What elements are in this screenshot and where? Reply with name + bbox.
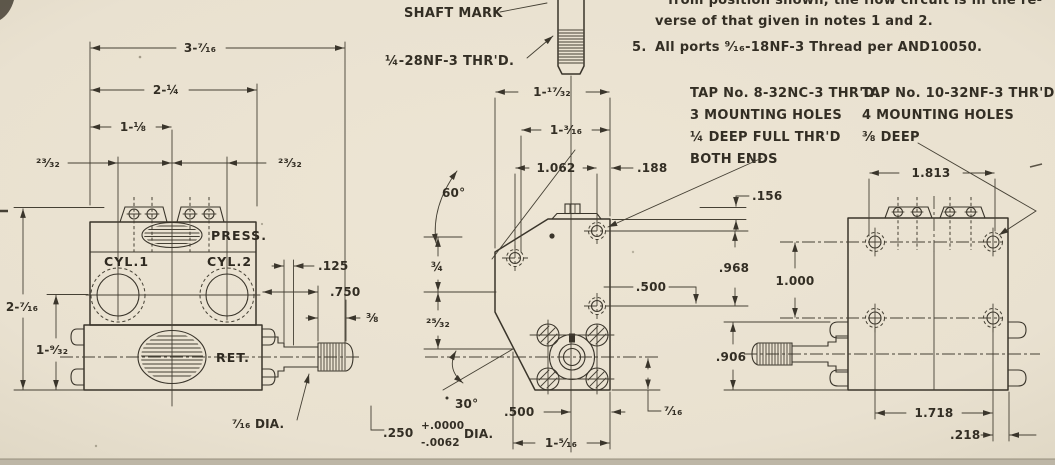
dim-front-body-width: 2-¼ [153,83,179,97]
note-clipped-line: from position shown, the flow circuit is… [668,0,1042,8]
dim-side-arc-lower: ²⁵⁄₃₂ [426,316,450,330]
ret-label: RET. [216,350,250,365]
dim-front-overall-height: 2-⁷⁄₁₆ [6,300,38,314]
dim-rear-edge-offset: .218 [950,428,980,442]
cyl2-label: CYL.2 [207,254,252,269]
dim-front-shaft-diameter: ⁷⁄₁₆ DIA. [232,417,284,431]
note-item5-number: 5. [632,40,647,55]
tap-right-line3: ⅜ DEEP [862,130,920,145]
dim-side-lower-width: 1-⁵⁄₁₆ [545,436,577,450]
shaft-mark-label: SHAFT MARK [404,6,503,21]
dim-side-edge-offset: .188 [637,161,667,175]
press-label: PRESS. [211,228,267,243]
dim-front-offset-left: ²³⁄₃₂ [36,156,60,170]
tap-left-line3: ¼ DEEP FULL THR'D [690,130,841,145]
dim-rear-hole-drop: 1.000 [776,274,815,288]
dim-side-center-drop: ⁷⁄₁₆ [664,404,683,418]
dim-side-bore: .250 [383,426,413,440]
dim-side-tab-height: .156 [752,189,782,203]
dim-rear-span-top: 1.813 [912,166,951,180]
dim-side-offset-right: .500 [636,280,666,294]
side-pin-dot [549,233,554,238]
dim-side-bore-tol-plus: +.0000 [421,420,464,432]
dim-front-step: .125 [318,259,348,273]
shaft-thread-label: ¼-28NF-3 THR'D. [385,54,514,69]
note-line2: verse of that given in notes 1 and 2. [655,14,933,29]
dim-side-bore-suffix: DIA. [464,427,493,441]
dim-side-angle-bottom: 30° [455,397,478,411]
dim-side-angle-top: 60° [442,186,465,200]
tap-left-line1: TAP No. 8-32NC-3 THR'D. [690,86,880,101]
dim-front-lower-height: 1-⁹⁄₃₂ [36,343,68,357]
drawing-sheet: PRESS. CYL.1 CYL.2 RET. 3-⁷⁄₁₆ [0,0,1055,465]
dim-rear-span-bottom: 1.718 [915,406,954,420]
dim-rear-shaft-drop: .906 [716,350,746,364]
valve-engineering-drawing: PRESS. CYL.1 CYL.2 RET. 3-⁷⁄₁₆ [0,0,1055,465]
dim-front-thread-length: ⅜ [366,311,379,325]
dim-front-overall-width: 3-⁷⁄₁₆ [184,41,216,55]
dim-side-bore-tol-minus: -.0062 [421,437,460,449]
cyl1-label: CYL.1 [104,254,149,269]
tap-right-line2: 4 MOUNTING HOLES [862,108,1014,123]
tap-left-line4: BOTH ENDS [690,152,778,167]
dim-front-offset-right: ²³⁄₃₂ [278,156,302,170]
dim-front-shaft-length: .750 [330,285,360,299]
dim-side-hole-span: 1.062 [537,161,576,175]
dim-side-overall-width: 1-¹⁷⁄₃₂ [533,85,571,99]
tap-right-line1: TAP No. 10-32NF-3 THR'D. [862,86,1055,101]
tap-left-line2: 3 MOUNTING HOLES [690,108,842,123]
dim-front-half-width: 1-⅛ [120,120,146,134]
dim-side-hole-drop: .968 [719,261,749,275]
dim-side-upper-width: 1-³⁄₁₆ [550,123,582,137]
dim-side-arc-upper: ¾ [431,260,444,274]
dim-side-offset-bottom: .500 [504,405,534,419]
note-item5-text: All ports ⁹⁄₁₆-18NF-3 Thread per AND1005… [655,40,982,55]
